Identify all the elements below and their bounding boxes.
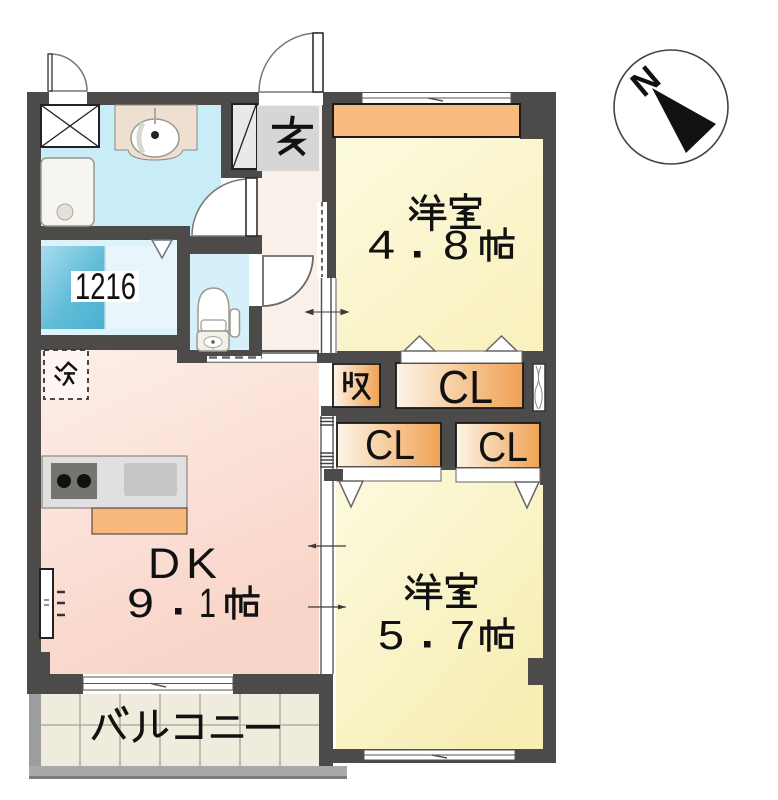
svg-text:7: 7 [450,612,475,658]
svg-text:5: 5 [378,612,404,658]
svg-text:8: 8 [443,222,469,268]
svg-text:CL: CL [365,421,415,468]
svg-text:CL: CL [438,361,493,413]
svg-text:4: 4 [368,222,395,268]
svg-text:1216: 1216 [75,266,136,307]
svg-text:CL: CL [478,423,528,470]
svg-text:1: 1 [199,580,216,626]
svg-text:9: 9 [127,580,154,626]
